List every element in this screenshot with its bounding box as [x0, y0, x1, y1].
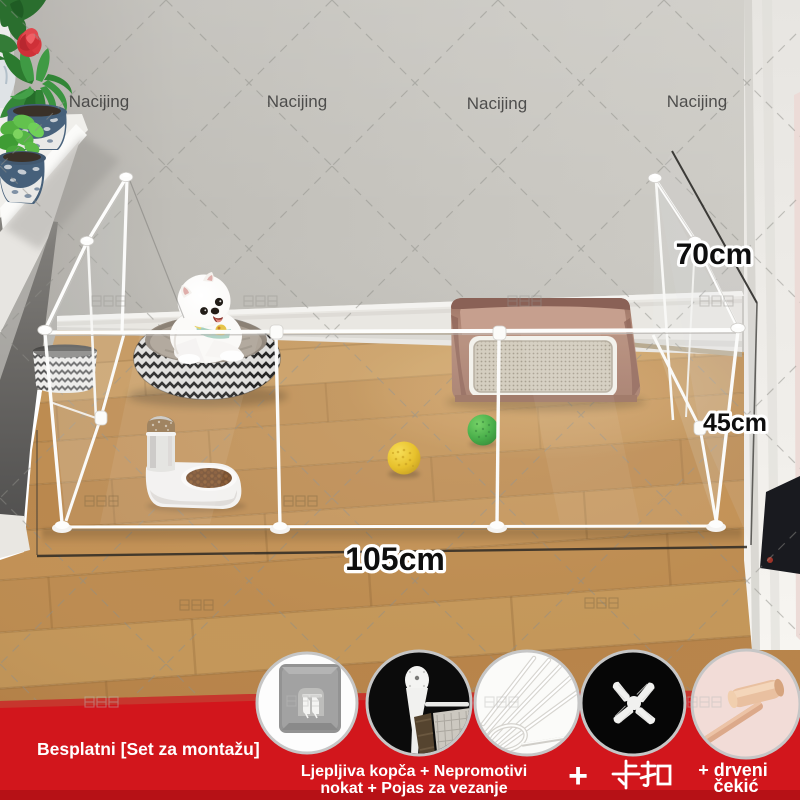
svg-text:Nacijing: Nacijing — [667, 92, 727, 111]
svg-text:Nacijing: Nacijing — [69, 92, 129, 111]
svg-text:45cm: 45cm — [703, 409, 767, 437]
svg-text:+: + — [568, 757, 588, 795]
svg-text:70cm: 70cm — [676, 238, 753, 271]
svg-text:nokat + Pojas za vezanje: nokat + Pojas za vezanje — [320, 780, 507, 797]
svg-text:čekić: čekić — [713, 776, 758, 796]
svg-text:Nacijing: Nacijing — [267, 92, 327, 111]
svg-text:Nacijing: Nacijing — [467, 94, 527, 113]
svg-text:Besplatni [Set za montažu]: Besplatni [Set za montažu] — [37, 739, 260, 759]
svg-text:105cm: 105cm — [345, 541, 445, 577]
svg-text:Ljepljiva kopča + Nepromotivi: Ljepljiva kopča + Nepromotivi — [301, 763, 527, 780]
